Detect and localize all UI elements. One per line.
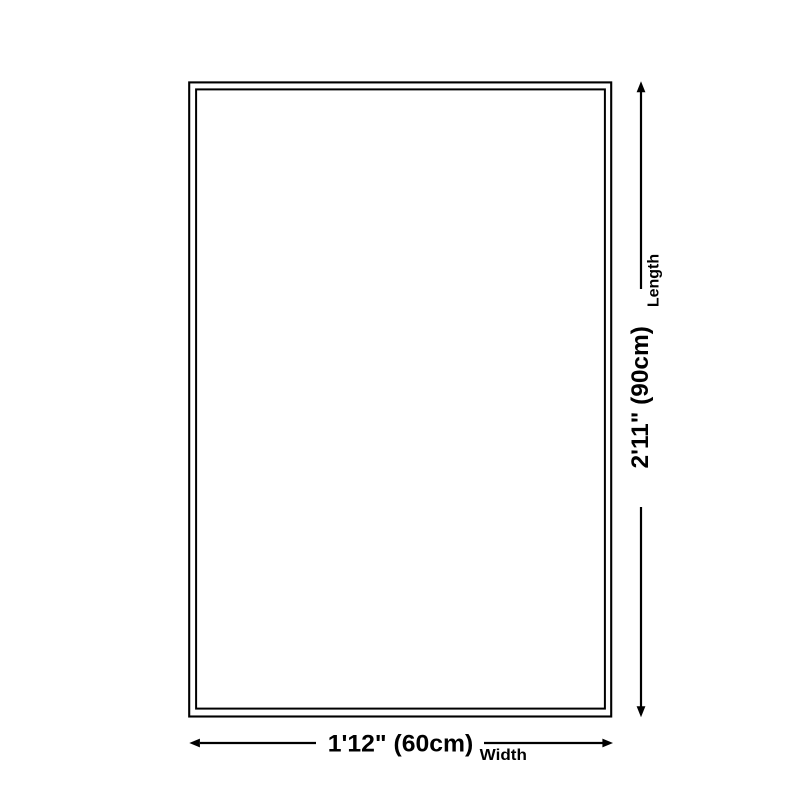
svg-text:Width: Width <box>480 746 527 764</box>
svg-text:2'11" (90cm): 2'11" (90cm) <box>627 326 654 468</box>
svg-text:1'12" (60cm): 1'12" (60cm) <box>328 730 474 757</box>
svg-text:Length: Length <box>646 254 663 307</box>
